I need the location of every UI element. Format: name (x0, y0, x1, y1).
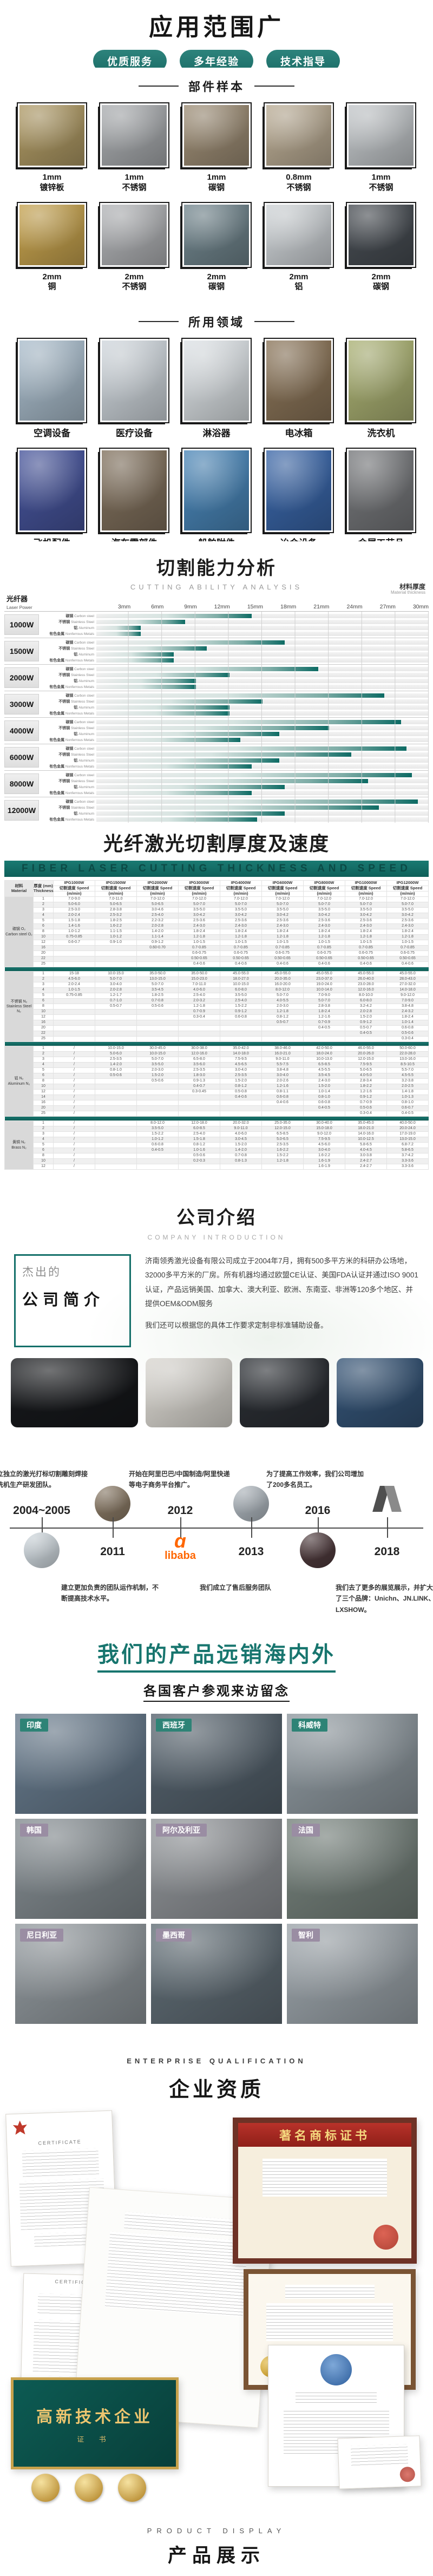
speed-cell: 2.5-4.0 (179, 1132, 220, 1137)
speed-cell: 3.0-4.2 (262, 913, 304, 919)
bar-fill (96, 785, 285, 789)
speed-cell (220, 1111, 262, 1117)
field-item: 淋浴器 (181, 338, 252, 439)
bar-row: 铝 Aluminum (42, 651, 429, 657)
bar-row: 不锈钢 Stainless Steel (42, 672, 429, 678)
table-row: 8/0.5-0.60.7-0.81.5-2.21.6-2.23.0-3.83.7… (5, 1153, 429, 1159)
table-row: 41.0-1.52.0-2.83.5-4.54.0-6.06.0-8.08.0-… (5, 988, 429, 993)
table-row: 160.60-0.700.7-0.850.7-0.850.7-0.850.7-0… (5, 946, 429, 951)
material-label: 铝 Aluminum (42, 731, 96, 737)
thickness-cell: 8 (34, 1079, 54, 1084)
blue-emblem-icon (320, 2354, 352, 2385)
thickness-cell: 3 (34, 908, 54, 913)
speed-cell: 10.0-15.0 (220, 982, 262, 988)
unit-subheader: (m/min) (220, 892, 262, 897)
speed-table-wrap: 材料Material 厚度 (mm)Thickness IPG1000WIPG1… (0, 880, 433, 1170)
field-photo (266, 450, 331, 530)
power-group-bars: 碳钢 Carbon steel 不锈钢 Stainless Steel 铝 Al… (42, 719, 429, 743)
chart-axis-row: 光纤器Laser Power 3mm6mm9mm12mm15mm18mm21mm… (4, 595, 429, 612)
speed-cell: 0.5-0.6 (95, 1073, 137, 1079)
bar-track (96, 773, 429, 777)
thickness-cell: 4 (34, 1063, 54, 1068)
speed-cell: 5.0-7.0 (304, 999, 345, 1004)
table-row: 100.75-0.851.0-1.21.1-1.41.2-1.81.2-1.81… (5, 935, 429, 940)
field-photo (266, 340, 331, 421)
bar-fill (96, 791, 252, 795)
material-label: 有色金属 Nonferrous Metals (42, 764, 96, 769)
table-row: 5/0.8-1.02.0-3.02.5-3.53.0-4.03.8-4.84.5… (5, 1068, 429, 1073)
speed-cell: 4.5-6.5 (220, 1063, 262, 1068)
bar-row: 碳钢 Carbon steel (42, 692, 429, 698)
power-group-6000W: 6000W 碳钢 Carbon steel 不锈钢 Stainless Stee… (4, 744, 429, 771)
speed-cell: 6.0-8.0 (345, 999, 387, 1004)
unit-subheader: (m/min) (262, 892, 304, 897)
thickness-cell: 1 (34, 1046, 54, 1052)
speed-cell: 3.5-5.0 (220, 908, 262, 913)
speed-cell: 2.0-2.4 (54, 913, 95, 919)
unit-subheader: (m/min) (95, 892, 137, 897)
table-row: 2/5.0-6.010.0-15.012.0-16.014.0-18.016.0… (5, 1052, 429, 1057)
speed-cell: 0.7-0.85 (220, 946, 262, 951)
speed-cell: 2.4-3.2 (387, 1010, 429, 1015)
field-label: 金属工艺品 (346, 538, 416, 541)
power-label: 1000W (4, 614, 39, 635)
unit-subheader: (m/min) (54, 892, 95, 897)
field-label: 电冰箱 (264, 428, 334, 439)
speed-cell (179, 1111, 220, 1117)
bar-track (96, 720, 429, 724)
thickness-ticks: 3mm6mm9mm12mm15mm18mm21mm24mm27mm30mm (97, 604, 429, 610)
bar-row: 碳钢 Carbon steel (42, 719, 429, 725)
bar-track (96, 705, 429, 710)
speed-cell: 3.5-5.0 (179, 908, 220, 913)
speed-cell (54, 962, 95, 967)
speed-cell: 38.0-46.0 (262, 1046, 304, 1052)
speed-cell (262, 1111, 304, 1117)
sample-item: 1mm镀锌板 (17, 102, 87, 193)
title-line-right (254, 86, 294, 87)
thickness-cell: 6 (34, 999, 54, 1004)
speed-cell: 15-18 (54, 972, 95, 977)
speed-cell (95, 1079, 137, 1084)
speed-cell: 3.0-3.8 (345, 1153, 387, 1159)
unit-subheader: (m/min) (179, 892, 220, 897)
speed-cell (54, 946, 95, 951)
sample-label: 2mm铝 (264, 272, 334, 293)
axis-tick: 30mm (396, 604, 429, 610)
field-item: 飞机配件 (17, 448, 87, 541)
thickness-cell: 22 (34, 1031, 54, 1037)
cutting-ability-title: 切割能力分析 (0, 553, 433, 580)
speed-cell: 1.0-1.6 (179, 1148, 220, 1153)
speed-cell: 0.6-0.75 (262, 951, 304, 956)
speed-cell: 6.5-8.5 (262, 1132, 304, 1137)
speed-cell: 7.0-12.0 (387, 897, 429, 902)
timeline-text: 我们去了更多的展览展示，并扩大了三个品牌：Unichn、JN.LINK、LXSH… (336, 1582, 433, 1615)
bar-row: 不锈钢 Stainless Steel (42, 698, 429, 704)
speed-cell: 1.0-1.3 (387, 1095, 429, 1100)
speed-cell (95, 1010, 137, 1015)
speed-cell: 0.5-0.8 (220, 1090, 262, 1095)
speed-cell (304, 1031, 345, 1037)
speed-cell (95, 962, 137, 967)
bar-track (96, 620, 429, 624)
speed-cell: 1.0-1.2 (137, 1137, 179, 1143)
sample-item: 1mm不锈钢 (346, 102, 416, 193)
bar-row: 不锈钢 Stainless Steel (42, 804, 429, 810)
sample-label: 0.8mm不锈钢 (264, 173, 334, 193)
speed-cell: 30.0-40.0 (304, 1121, 345, 1126)
table-row: 120.3-0.40.6-0.80.8-1.21.2-1.61.5-2.01.8… (5, 1015, 429, 1020)
timeline-photo (233, 1486, 269, 1522)
speed-cell: 1.8-2.4 (387, 1015, 429, 1020)
speed-cell (179, 1100, 220, 1106)
speed-cell: 1.2-1.8 (345, 935, 387, 940)
bar-track (96, 791, 429, 795)
speed-subheader: 切割速度 Speed (304, 886, 345, 892)
bar-fill (96, 738, 240, 742)
speed-cell: / (54, 1132, 95, 1137)
speed-cell: 1.4-1.8 (387, 1090, 429, 1095)
material-cell: 铝 N₂Aluminum N₂ (5, 1046, 34, 1117)
speed-cell: 1.2-1.8 (387, 935, 429, 940)
sample-label: 1mm不锈钢 (99, 173, 169, 193)
sample-photo-frame (264, 102, 334, 168)
thickness-cell: 12 (34, 1090, 54, 1095)
speed-cell: 2.4-2.7 (345, 1159, 387, 1164)
speed-cell: / (54, 1068, 95, 1073)
section-product-display-footer: PRODUCT DISPLAY 产品展示 (0, 2522, 433, 2576)
bar-fill (96, 805, 379, 810)
bar-track (96, 632, 429, 636)
speed-cell: 14.0-18.0 (387, 988, 429, 993)
power-group-4000W: 4000W 碳钢 Carbon steel 不锈钢 Stainless Stee… (4, 718, 429, 744)
thickness-cell: 8 (34, 1004, 54, 1010)
sample-photo (266, 205, 331, 265)
speed-cell (179, 1095, 220, 1100)
gold-medal-icon (75, 2474, 103, 2502)
timeline-event-2018: 2018 我们去了更多的展览展示，并扩大了三个品牌：Unichn、JN.LINK… (336, 1459, 433, 1629)
speed-cell (54, 956, 95, 962)
speed-cell: 2.4-3.0 (304, 1079, 345, 1084)
speed-cell: 4.0-6.0 (179, 988, 220, 993)
speed-cell (262, 1031, 304, 1037)
thickness-cell: 12 (34, 1015, 54, 1020)
speed-cell: / (54, 1057, 95, 1063)
speed-cell: / (54, 1159, 95, 1164)
speed-cell (137, 951, 179, 956)
table-row: 16/0.4-0.60.6-0.80.7-0.90.8-1.0 (5, 1100, 429, 1106)
speed-cell: 3.0-4.0 (95, 982, 137, 988)
material-cell: 黄铜 N₂Brass N₂ (5, 1121, 34, 1170)
speed-cell: 3.0-4.6 (137, 908, 179, 913)
speed-cell: 1.0-1.5 (220, 940, 262, 946)
bar-track (96, 758, 429, 763)
field-photo (349, 450, 414, 530)
speed-cell: 2.5-4.0 (137, 913, 179, 919)
speed-cell: 2.8-3.8 (304, 1004, 345, 1010)
speed-cell: 0.5-0.7 (262, 1020, 304, 1026)
speed-cell: 1.6-2.2 (262, 1148, 304, 1153)
speed-cell: 23.0-28.0 (345, 982, 387, 988)
speed-cell: / (54, 1137, 95, 1143)
thickness-cell: 12 (34, 1164, 54, 1170)
speed-cell: 2.5-3.6 (345, 919, 387, 924)
speed-cell: 1.8-2.4 (304, 929, 345, 935)
red-seal-icon (399, 2467, 415, 2482)
speed-cell (262, 1164, 304, 1170)
speed-cell: 0.7-0.85 (345, 946, 387, 951)
bar-fill (96, 746, 406, 751)
model-column-header: IPG4000W (220, 881, 262, 886)
speed-cell: 10.0-15.0 (95, 1046, 137, 1052)
table-row: 200.4-0.50.5-0.70.6-0.8 (5, 1026, 429, 1031)
speed-cell (95, 1164, 137, 1170)
speed-cell: / (54, 1090, 95, 1095)
cutting-ability-subtitle: CUTTING ABILITY ANALYSIS (0, 583, 433, 591)
speed-subheader: 切割速度 Speed (345, 886, 387, 892)
speed-cell: 1.5-1.8 (179, 1137, 220, 1143)
bar-row: 铝 Aluminum (42, 678, 429, 684)
customer-visit-photo: 印度 (15, 1714, 146, 1814)
field-photo (102, 450, 167, 530)
bar-track (96, 811, 429, 816)
table-row: 32.0-2.43.0-4.05.0-7.07.0-11.010.0-15.01… (5, 982, 429, 988)
trademark-banner: 著名商标证书 (238, 2123, 411, 2147)
certificate-text-lines (34, 2232, 93, 2247)
company-photo (337, 1358, 423, 1427)
thickness-cell: 1 (34, 972, 54, 977)
speed-cell: 1.4-2.0 (220, 1148, 262, 1153)
table-row: 250.4-0.60.4-0.60.4-0.60.4-0.60.4-0.60.4… (5, 962, 429, 967)
power-group-bars: 碳钢 Carbon steel 不锈钢 Stainless Steel 铝 Al… (42, 772, 429, 796)
thickness-column-header: 厚度 (mm)Thickness (34, 881, 54, 897)
speed-cell: 3.5-5.0 (137, 1063, 179, 1068)
bar-row: 有色金属 Nonferrous Metals (42, 657, 429, 663)
bar-fill (96, 685, 196, 689)
table-row: 10/0.4-0.70.8-1.21.2-1.61.5-2.01.8-2.22.… (5, 1084, 429, 1090)
speed-cell (95, 1132, 137, 1137)
table-row: 5/0.6-0.80.8-1.21.5-2.02.5-3.54.5-6.05.8… (5, 1143, 429, 1148)
table-row: 4/1.0-1.21.5-1.83.0-4.55.0-6.57.5-9.510.… (5, 1137, 429, 1143)
material-label: 不锈钢 Stainless Steel (42, 699, 96, 704)
bar-fill (96, 693, 384, 698)
application-fields-title: 所用领域 (0, 313, 433, 330)
speed-cell: 2.0-2.6 (262, 1079, 304, 1084)
material-label: 有色金属 Nonferrous Metals (42, 817, 96, 822)
speed-cell: / (54, 1100, 95, 1106)
axis-tick: 27mm (363, 604, 396, 610)
speed-cell: 0.4-0.6 (387, 962, 429, 967)
material-label: 铝 Aluminum (42, 652, 96, 657)
model-column-header: IPG12000W (387, 881, 429, 886)
material-label: 碳钢 Carbon steel (42, 693, 96, 698)
sample-photo-frame (17, 102, 87, 168)
bar-fill (96, 658, 174, 663)
speed-cell: 28.0-43.0 (387, 977, 429, 982)
table-row: 14/0.4-0.60.6-0.80.8-1.00.9-1.21.0-1.3 (5, 1095, 429, 1100)
company-paragraph-2: 我们还可以根据您的具体工作要求定制非标准辅助设备。 (145, 1319, 419, 1333)
speed-cell: 0.6-0.75 (220, 951, 262, 956)
field-photo-frame (181, 448, 252, 533)
company-photo (146, 1358, 232, 1427)
speed-cell: 10.0-14.0 (304, 988, 345, 993)
speed-cell: 13.0-16.0 (387, 1057, 429, 1063)
table-row: 81.0-1.21.1-1.51.4-2.01.8-2.41.8-2.41.8-… (5, 929, 429, 935)
timeline-media (336, 1486, 433, 1515)
power-group-3000W: 3000W 碳钢 Carbon steel 不锈钢 Stainless Stee… (4, 691, 429, 718)
bar-row: 不锈钢 Stainless Steel (42, 725, 429, 731)
country-badge: 智利 (292, 1929, 320, 1942)
speed-cell: 0.7-0.85 (387, 946, 429, 951)
speed-cell: 7.0-12.0 (262, 897, 304, 902)
speed-cell: 0.6-0.7 (387, 1106, 429, 1111)
table-row: 50.75-0.851.2-1.71.8-2.52.5-4.03.5-5.05.… (5, 993, 429, 999)
bar-track (96, 711, 429, 716)
field-item: 金属工艺品 (346, 448, 416, 541)
model-column-header: IPG3000W (179, 881, 220, 886)
field-photo (102, 340, 167, 421)
speed-cell: 3.5-6.0 (179, 1063, 220, 1068)
speed-cell: 1.2-1.7 (95, 993, 137, 999)
bar-row: 有色金属 Nonferrous Metals (42, 737, 429, 743)
speed-cell: 0.2-0.3 (179, 1159, 220, 1164)
field-photo (184, 340, 249, 421)
field-label: 汽车零部件 (99, 538, 169, 541)
bar-row: 碳钢 Carbon steel (42, 798, 429, 804)
material-label: 铝 Aluminum (42, 758, 96, 763)
speed-cell: 9.0-11.0 (220, 1126, 262, 1132)
speed-cell: 8.0-12.0 (137, 1121, 179, 1126)
speed-cell: 1.8-2.4 (387, 929, 429, 935)
country-badge: 西班牙 (156, 1719, 192, 1732)
speed-cell: 1.0-1.5 (387, 940, 429, 946)
speed-cell: 1.8-2.4 (304, 1010, 345, 1015)
badge-quality-service: 优质服务 (93, 50, 167, 68)
speed-table-title: 光纤激光切割厚度及速度 (0, 828, 433, 856)
unit-subheader: (m/min) (137, 892, 179, 897)
speed-cell: 0.4-0.6 (304, 962, 345, 967)
material-label: 有色金属 Nonferrous Metals (42, 631, 96, 637)
certificates-collage: CERTIFICATE CERTIFICATE 著名商标证书 (0, 2112, 433, 2486)
timeline-photo (95, 1486, 130, 1522)
speed-cell: 1.8-2.4 (262, 929, 304, 935)
thickness-cell: 1 (34, 897, 54, 902)
certificate-text-lines (350, 2444, 408, 2468)
power-label: 8000W (4, 774, 39, 794)
table-row: 20/0.4-0.50.5-0.60.6-0.7 (5, 1106, 429, 1111)
bar-fill (96, 673, 229, 677)
speed-cell: 45.0-55.0 (220, 972, 262, 977)
material-label: 不锈钢 Stainless Steel (42, 672, 96, 678)
speed-cell: 3.3-3.6 (387, 1164, 429, 1170)
table-row: 42.0-2.42.5-3.22.5-4.03.0-4.23.0-4.23.0-… (5, 913, 429, 919)
thickness-cell: 16 (34, 1100, 54, 1106)
table-row: 3/2.5-3.55.0-7.06.5-8.07.5-9.59.0-11.010… (5, 1057, 429, 1063)
speed-cell (54, 1015, 95, 1020)
speed-cell: 4.0-6.0 (220, 1132, 262, 1137)
company-title: 公司介绍 (0, 1203, 433, 1229)
power-group-bars: 碳钢 Carbon steel 不锈钢 Stainless Steel 铝 Al… (42, 639, 429, 663)
customer-visit-photo: 智利 (287, 1924, 418, 2024)
speed-cell: 1.8-3.0 (179, 1073, 220, 1079)
speed-cell: 30.0-38.0 (179, 1046, 220, 1052)
speed-cell: 1.5-2.0 (220, 1079, 262, 1084)
table-row: 碳钢 O₂Carbon steel O₂17.0-9.07.0-11.07.0-… (5, 897, 429, 902)
material-thickness-label: 材料厚度 Material thickness (391, 584, 425, 595)
speed-subheader: 切割速度 Speed (54, 886, 95, 892)
speed-cell (220, 1164, 262, 1170)
speed-cell: 5.0-7.0 (262, 993, 304, 999)
speed-cell: 0.75-0.85 (54, 935, 95, 940)
material-label: 有色金属 Nonferrous Metals (42, 711, 96, 716)
speed-cell: 10.0-12.5 (345, 1137, 387, 1143)
speed-cell: 6.5-8.5 (304, 1063, 345, 1068)
speed-cell: 46.0-55.0 (345, 1046, 387, 1052)
badge-technical-guidance: 技术指导 (266, 50, 340, 68)
thickness-cell: 4 (34, 988, 54, 993)
bar-fill (96, 720, 401, 724)
speed-cell: 3.0-4.5 (220, 1137, 262, 1143)
thickness-cell: 25 (34, 1111, 54, 1117)
speed-cell: 9.0-11.0 (262, 1057, 304, 1063)
material-label: 碳钢 Carbon steel (42, 746, 96, 751)
speed-cell: 3.2-4.2 (345, 1004, 387, 1010)
bar-fill (96, 705, 229, 710)
speed-cell: 1.2-1.6 (345, 1090, 387, 1095)
speed-cell (95, 1084, 137, 1090)
speed-cell (95, 1159, 137, 1164)
field-label: 冶金设备 (264, 538, 334, 541)
speed-cell: 5.0-7.0 (387, 902, 429, 908)
speed-cell: 5.5-7.5 (262, 1063, 304, 1068)
speed-cell: 1.0-1.2 (95, 935, 137, 940)
table-row: 120.6-0.70.9-1.00.9-1.21.0-1.51.0-1.51.0… (5, 940, 429, 946)
speed-cell: 0.5-0.6 (137, 1079, 179, 1084)
thickness-cell: 25 (34, 962, 54, 967)
speed-cell: 0.50-0.65 (387, 956, 429, 962)
section-products-worldwide: 我们的产品远销海内外 各国客户参观来访留念 印度 西班牙 科威特 韩国 阿尔及利… (0, 1629, 433, 2024)
speed-cell: 0.6-0.75 (304, 951, 345, 956)
speed-cell: 4.5-5.5 (304, 1068, 345, 1073)
table-row: 51.5-1.81.8-2.52.2-3.22.5-3.62.5-3.62.5-… (5, 919, 429, 924)
speed-cell: 0.4-0.5 (304, 1106, 345, 1111)
speed-cell: 0.9-1.3 (179, 1079, 220, 1084)
field-photo-frame (181, 338, 252, 423)
speed-cell: 7.0-12.0 (220, 897, 262, 902)
speed-cell: 45.0-55.0 (387, 972, 429, 977)
speed-cell: 22.0-28.0 (387, 1052, 429, 1057)
table-row: 80.5-0.70.5-0.61.2-1.81.5-2.22.0-3.02.8-… (5, 1004, 429, 1010)
bar-fill (96, 764, 252, 769)
sample-photo-frame (346, 102, 416, 168)
speed-cell: 0.4-0.6 (262, 1100, 304, 1106)
red-seal-icon (373, 2225, 398, 2250)
model-column-header: IPG1500W (95, 881, 137, 886)
power-label: 1500W (4, 641, 39, 661)
speed-subheader: 切割速度 Speed (179, 886, 220, 892)
speed-cell: 0.8-1.2 (179, 1143, 220, 1148)
laser-product-detail-page: 应用范围广 优质服务 多年经验 技术指导 部件样本 1mm镀锌板 1mm不锈钢 … (0, 0, 433, 2576)
speed-cell (95, 956, 137, 962)
speed-subheader: 切割速度 Speed (95, 886, 137, 892)
speed-cell (137, 1159, 179, 1164)
badge-years-experience: 多年经验 (180, 50, 253, 68)
speed-cell: 1.8-2.4 (220, 929, 262, 935)
speed-cell: 0.5-0.7 (95, 1004, 137, 1010)
speed-cell: 6.0-8.0 (220, 988, 262, 993)
unit-subheader: (m/min) (304, 892, 345, 897)
